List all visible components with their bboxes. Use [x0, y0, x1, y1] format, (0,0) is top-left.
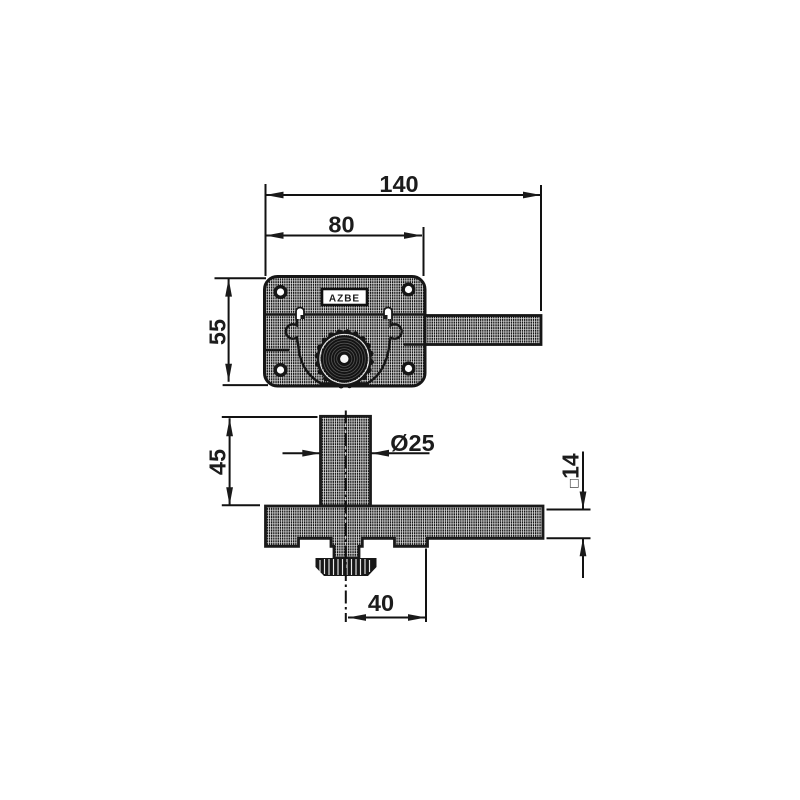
svg-text:45: 45	[205, 449, 231, 475]
svg-text:80: 80	[328, 212, 354, 238]
svg-text:55: 55	[205, 319, 231, 345]
svg-text:40: 40	[368, 590, 394, 616]
svg-text:Ø25: Ø25	[390, 430, 434, 456]
svg-text:AZBE: AZBE	[329, 294, 360, 305]
svg-text:140: 140	[379, 171, 418, 197]
